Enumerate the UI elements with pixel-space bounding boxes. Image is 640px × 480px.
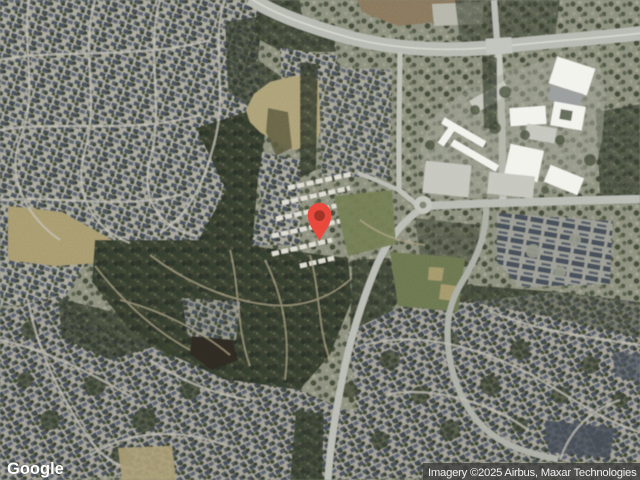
svg-text:Imagery ©2025 Airbus, Maxar Te: Imagery ©2025 Airbus, Maxar Technologies: [428, 467, 637, 479]
svg-text:Google: Google: [7, 460, 64, 478]
